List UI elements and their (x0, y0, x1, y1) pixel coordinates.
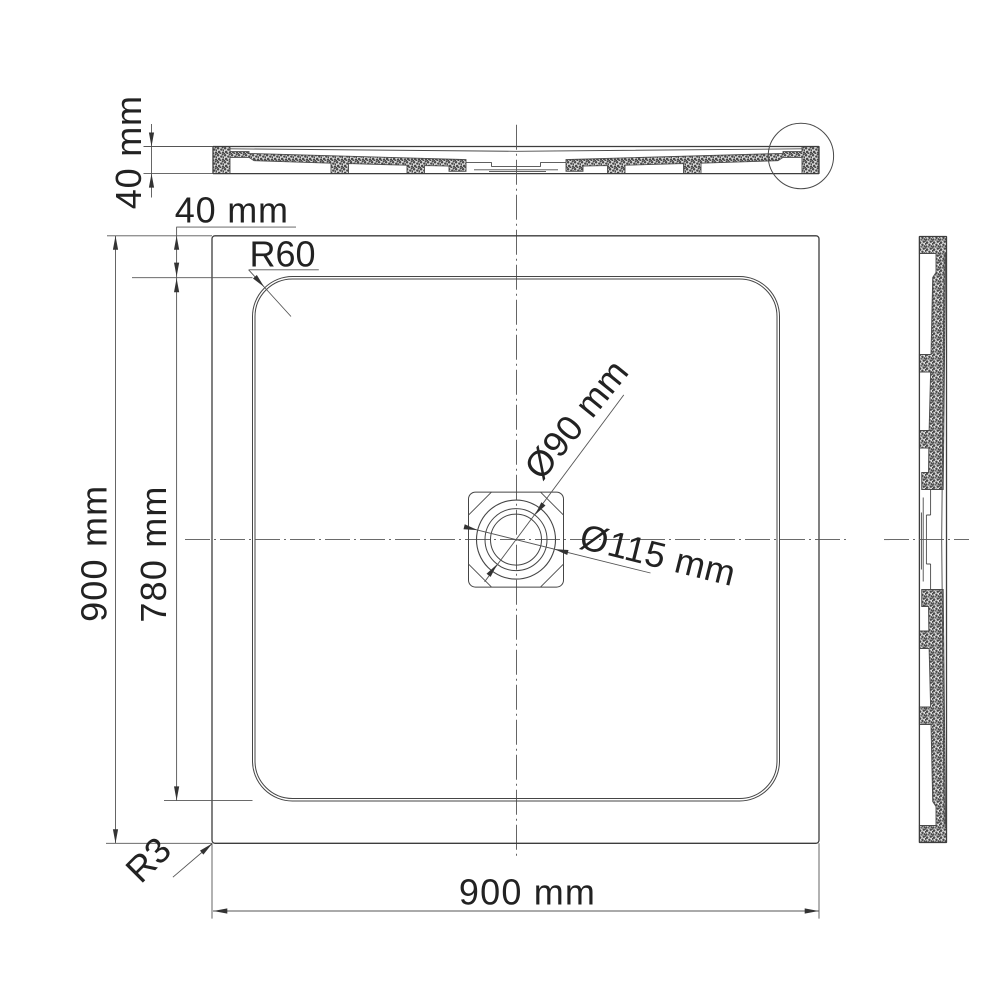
svg-text:40 mm: 40 mm (175, 190, 289, 231)
svg-text:Ø90 mm: Ø90 mm (516, 351, 637, 486)
svg-text:R3: R3 (117, 829, 179, 891)
svg-text:R60: R60 (249, 234, 315, 275)
svg-text:900 mm: 900 mm (73, 485, 114, 622)
svg-text:780 mm: 780 mm (133, 485, 174, 622)
svg-text:40 mm: 40 mm (108, 95, 149, 209)
svg-text:Ø115 mm: Ø115 mm (576, 516, 740, 594)
svg-text:900 mm: 900 mm (459, 872, 596, 913)
